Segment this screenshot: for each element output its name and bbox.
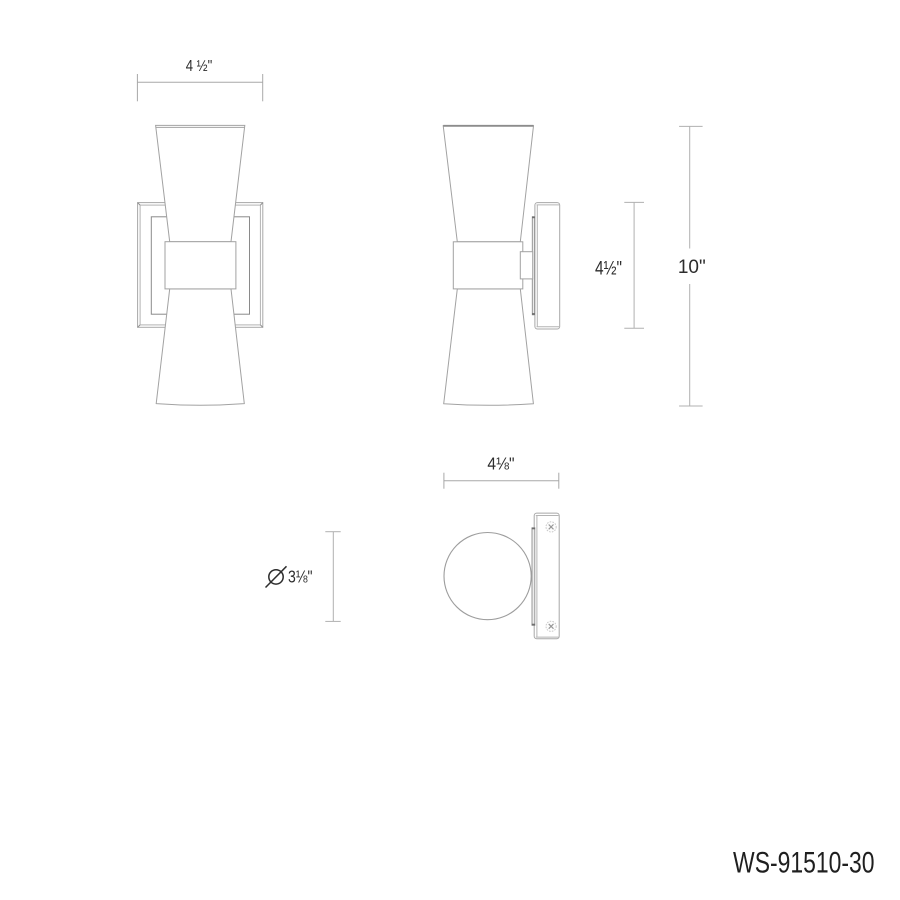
svg-text:3⅛": 3⅛" bbox=[288, 567, 313, 587]
svg-text:4 ½": 4 ½" bbox=[186, 58, 213, 75]
svg-text:4½": 4½" bbox=[595, 259, 622, 280]
svg-text:10": 10" bbox=[678, 257, 706, 278]
svg-text:WS-91510-30: WS-91510-30 bbox=[733, 847, 875, 880]
svg-text:4⅛": 4⅛" bbox=[487, 454, 514, 474]
